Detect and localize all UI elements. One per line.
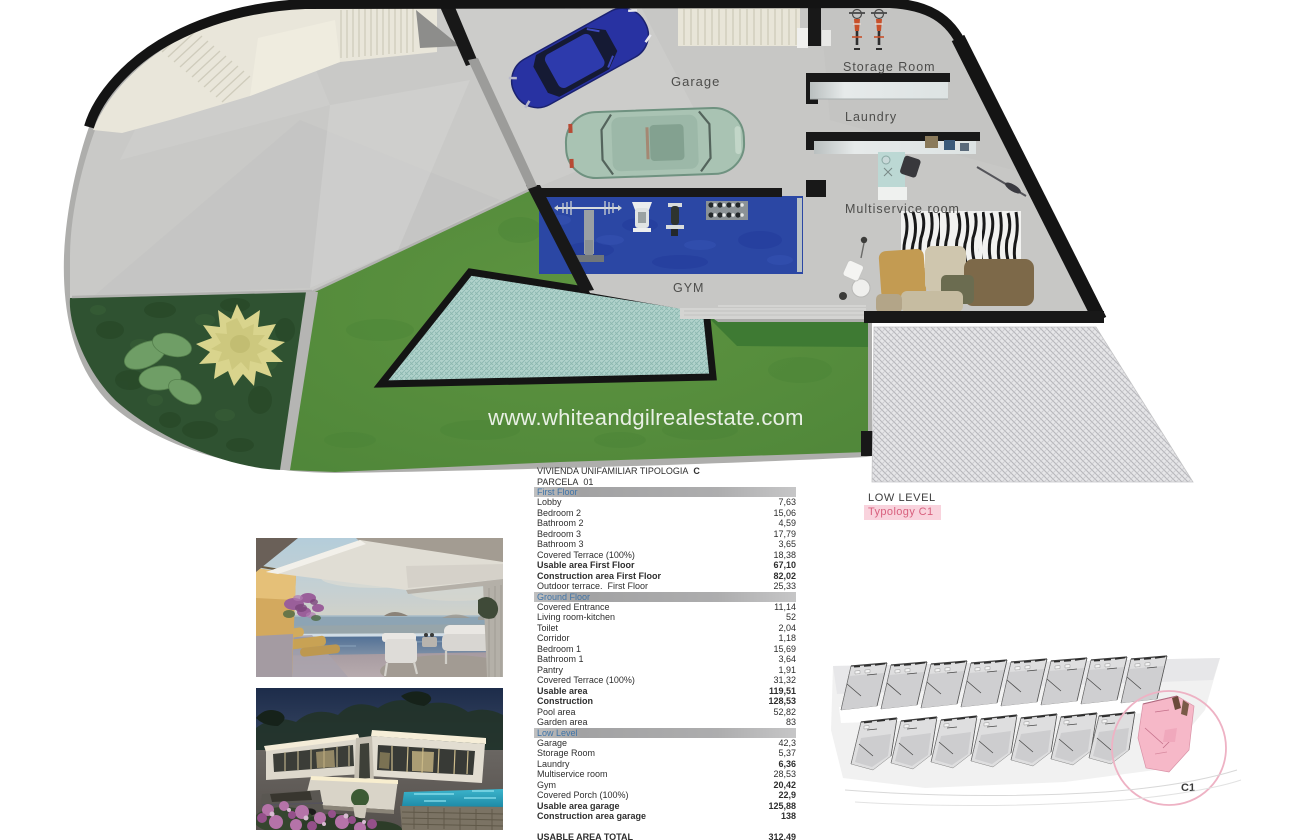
svg-text:Garage: Garage: [671, 74, 720, 89]
svg-text:www.whiteandgilrealestate.com: www.whiteandgilrealestate.com: [487, 405, 804, 430]
svg-text:GYM: GYM: [673, 281, 704, 295]
svg-text:Storage Room: Storage Room: [843, 60, 936, 74]
svg-text:Laundry: Laundry: [845, 110, 897, 124]
svg-text:Multiservice room: Multiservice room: [845, 202, 960, 216]
